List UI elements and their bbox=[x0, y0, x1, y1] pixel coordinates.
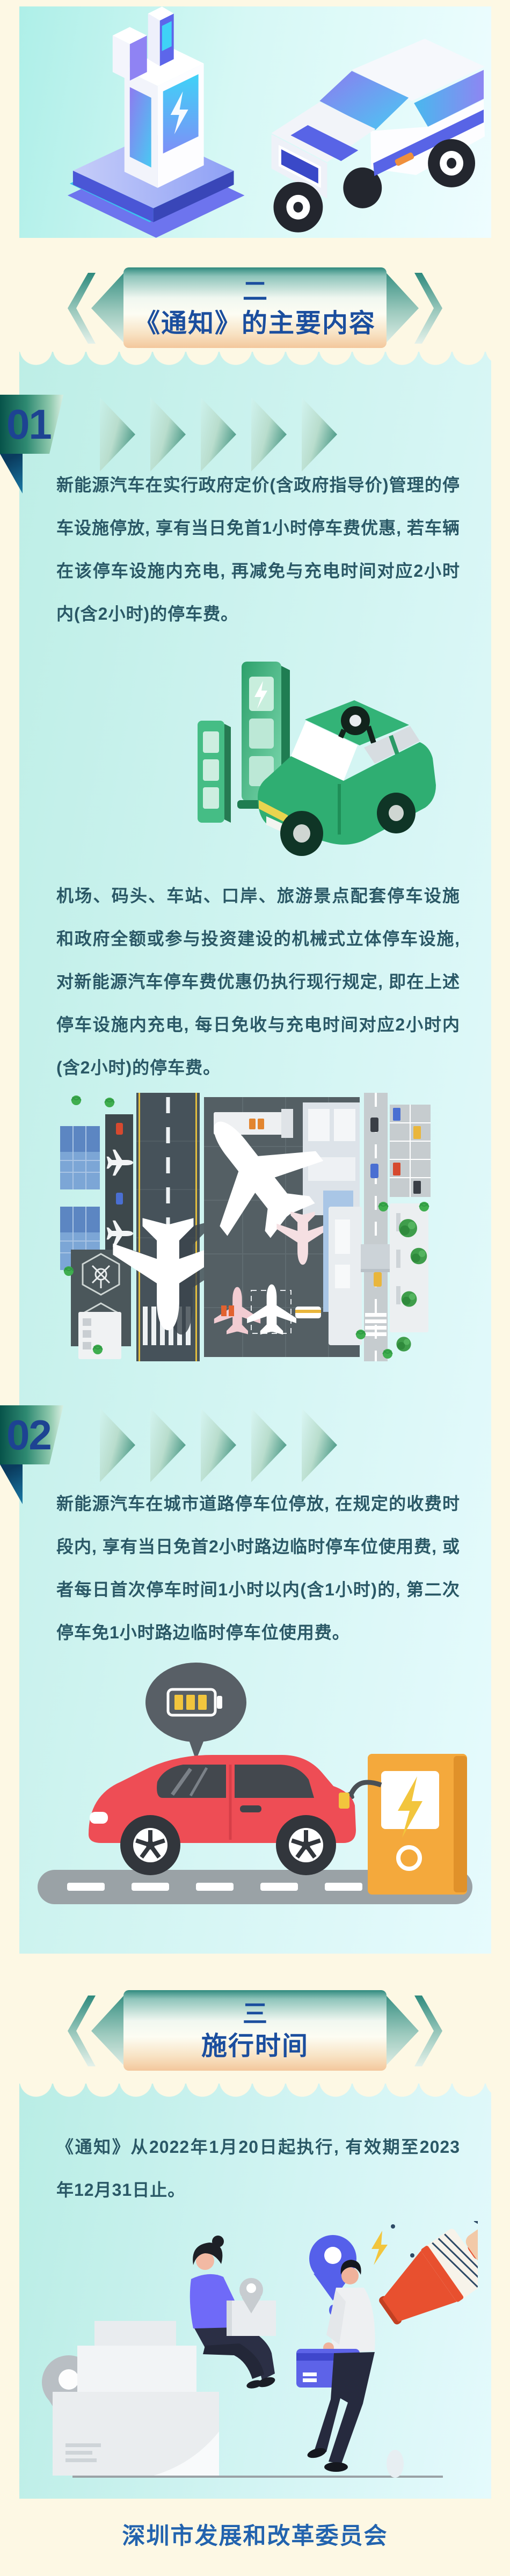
chevron-row-decoration bbox=[100, 397, 337, 471]
paragraph-parking-facility-discount: 新能源汽车在实行政府定价(含政府指导价)管理的停车设施停放, 享有当日免首1小时… bbox=[56, 463, 460, 635]
headlight bbox=[90, 1812, 108, 1824]
green-car-charging-illustration bbox=[177, 656, 446, 871]
airport-top-view-map-illustration bbox=[60, 1093, 431, 1361]
scallop-edge-decoration bbox=[19, 352, 491, 373]
paragraph-effective-dates: 《通知》从2022年1月20日起执行, 有效期至2023年12月31日止。 bbox=[56, 2125, 460, 2211]
banner-right-arrow-decoration bbox=[382, 1990, 447, 2071]
chevron-right-icon bbox=[251, 1408, 287, 1482]
access-road bbox=[364, 1093, 388, 1361]
banner-right-arrow-decoration bbox=[382, 267, 447, 348]
chevron-right-icon bbox=[100, 397, 135, 471]
box-stack bbox=[53, 2321, 219, 2476]
banner-title: 《通知》的主要内容 bbox=[134, 311, 376, 337]
chevron-right-icon bbox=[302, 1408, 337, 1482]
infographic-page: 二 《通知》的主要内容 01 新能源汽车在实行政府定价(含政府指导价)管理的停车… bbox=[0, 0, 510, 2576]
chevron-right-icon bbox=[150, 397, 186, 471]
paragraph-roadside-parking-discount: 新能源汽车在城市道路停车位停放, 在规定的收费时段内, 享有当日免首2小时路边临… bbox=[56, 1482, 460, 1654]
blue-glass-buildings bbox=[60, 1126, 100, 1270]
ribbon-fold-decoration bbox=[0, 1464, 23, 1504]
chevron-right-icon bbox=[100, 1408, 135, 1482]
chevron-right-icon bbox=[251, 397, 287, 471]
ground-line bbox=[72, 2476, 443, 2478]
green-charging-pole-short bbox=[198, 721, 231, 823]
door-handle bbox=[240, 1805, 261, 1812]
section-banner-effective-time: 三 施行时间 bbox=[63, 1990, 447, 2071]
banner-left-arrow-decoration bbox=[63, 1990, 128, 2071]
section-banner-main-content: 二 《通知》的主要内容 bbox=[63, 267, 447, 348]
banner-title: 施行时间 bbox=[201, 2034, 309, 2059]
megaphone-icon bbox=[360, 2221, 478, 2339]
charge-port bbox=[339, 1793, 349, 1809]
parking-lot bbox=[390, 1105, 431, 1197]
charging-station-isometric bbox=[68, 6, 245, 238]
scallop-edge-decoration bbox=[19, 2084, 491, 2105]
battery-speech-bubble bbox=[145, 1663, 246, 1760]
red-car bbox=[89, 1755, 356, 1875]
banner-plate: 三 施行时间 bbox=[123, 1990, 387, 2071]
chevron-right-icon bbox=[201, 1408, 236, 1482]
banner-kicker: 三 bbox=[243, 2001, 267, 2026]
chevron-right-icon bbox=[150, 1408, 186, 1482]
ev-charging-station-and-car-illustration bbox=[19, 6, 491, 238]
hero-illustration-panel bbox=[19, 6, 491, 238]
blue-suv-isometric bbox=[271, 39, 485, 233]
paragraph-airport-port-station-discount: 机场、码头、车站、口岸、旅游景点配套停车设施和政府全额或参与投资建设的机械式立体… bbox=[56, 874, 460, 1089]
red-car-charging-illustration bbox=[30, 1657, 480, 1904]
lightning-icon bbox=[371, 2231, 388, 2265]
chevron-right-icon bbox=[201, 397, 236, 471]
banner-plate: 二 《通知》的主要内容 bbox=[123, 267, 387, 348]
car-wheel bbox=[276, 1815, 336, 1875]
banner-left-arrow-decoration bbox=[63, 267, 128, 348]
chevron-row-decoration bbox=[100, 1408, 337, 1482]
small-plane-apron bbox=[105, 1114, 133, 1259]
footer-organization: 深圳市发展和改革委员会 bbox=[0, 2517, 510, 2551]
banner-kicker: 二 bbox=[243, 279, 267, 303]
item-02-number: 02 bbox=[0, 1411, 51, 1460]
man-standing bbox=[296, 2235, 404, 2478]
woman-sitting bbox=[190, 2236, 276, 2390]
shoe bbox=[324, 2462, 348, 2472]
item-01-number: 01 bbox=[0, 400, 51, 449]
chevron-right-icon bbox=[302, 397, 337, 471]
people-announcement-illustration bbox=[32, 2221, 478, 2495]
car-wheel bbox=[120, 1815, 180, 1875]
